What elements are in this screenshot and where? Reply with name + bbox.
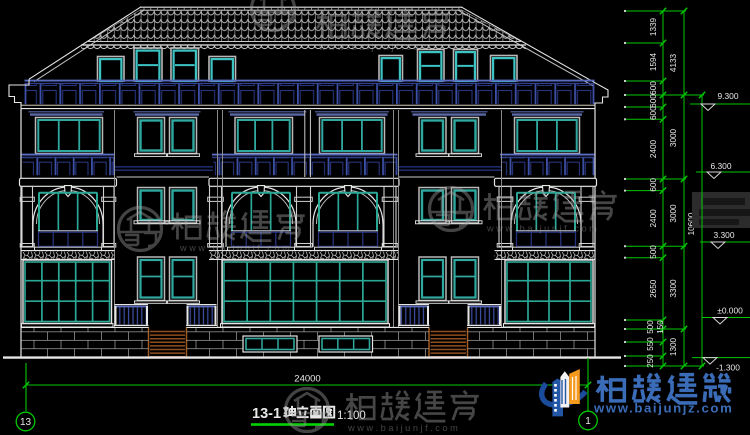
svg-text:1300: 1300 <box>669 337 678 356</box>
svg-text:3000: 3000 <box>669 128 678 147</box>
svg-text:-1.300: -1.300 <box>716 363 740 373</box>
svg-text:3000: 3000 <box>669 204 678 223</box>
svg-text:600: 600 <box>649 178 658 192</box>
svg-text:24000: 24000 <box>294 374 320 385</box>
svg-text:1594: 1594 <box>649 52 658 71</box>
svg-text:500: 500 <box>649 245 658 259</box>
svg-text:3.300: 3.300 <box>714 230 735 240</box>
svg-text:550: 550 <box>646 337 655 351</box>
svg-text:w w w . b a i j u n j f . c o: w w w . b a i j u n j f . c o m <box>347 423 458 433</box>
svg-text:150: 150 <box>656 320 665 334</box>
svg-text:600: 600 <box>649 94 658 108</box>
svg-text:250: 250 <box>646 354 655 368</box>
svg-text:w w w . b a i j u n j f . c o: w w w . b a i j u n j f . c o m <box>486 224 597 234</box>
svg-text:4133: 4133 <box>669 53 678 72</box>
svg-text:3300: 3300 <box>669 279 678 298</box>
svg-text:www.baijunjz.com: www.baijunjz.com <box>593 401 733 416</box>
svg-text:2400: 2400 <box>649 209 658 228</box>
svg-text:1: 1 <box>585 416 591 427</box>
svg-text:w w w . b a i j u n j f . c o: w w w . b a i j u n j f . c o m <box>179 243 290 253</box>
svg-text:w w w . b a i j u n j f . c o: w w w . b a i j u n j f . c o m <box>318 42 429 52</box>
svg-text:600: 600 <box>649 81 658 95</box>
svg-text:600: 600 <box>649 106 658 120</box>
svg-text:500: 500 <box>646 320 655 334</box>
svg-text:13-1: 13-1 <box>252 406 281 422</box>
svg-text:2400: 2400 <box>649 139 658 158</box>
svg-text:6.300: 6.300 <box>711 161 732 171</box>
svg-text:9.300: 9.300 <box>718 91 739 101</box>
svg-text:1339: 1339 <box>649 17 658 36</box>
svg-text:±0.000: ±0.000 <box>717 306 743 316</box>
svg-text:13: 13 <box>20 417 32 428</box>
svg-text:2650: 2650 <box>649 279 658 298</box>
